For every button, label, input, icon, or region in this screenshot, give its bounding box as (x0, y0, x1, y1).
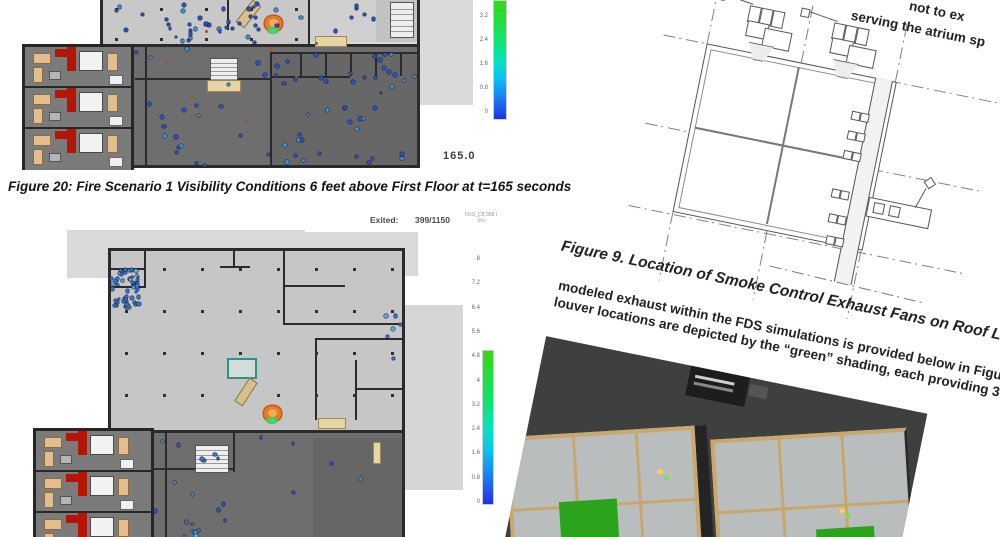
wall-line (145, 44, 147, 168)
occupant-dot (174, 135, 178, 139)
wall-line (400, 52, 402, 76)
wall-line (315, 338, 405, 340)
stair-graphic (390, 2, 414, 38)
wall-line (325, 52, 327, 76)
column-dot (125, 352, 128, 355)
equipment-box (836, 215, 847, 226)
occupant-dot (163, 134, 167, 138)
occupant-dot (148, 102, 152, 106)
occupant-cluster-dot (125, 303, 129, 307)
exhaust-fan-icon (770, 10, 785, 29)
column-dot (201, 310, 204, 313)
wall-line (36, 511, 151, 513)
occupant-cluster-dot (121, 279, 124, 282)
speck (664, 475, 668, 479)
fixture (120, 500, 134, 510)
column-dot (205, 8, 208, 11)
exited-count-label: Exited: (370, 215, 398, 225)
bed-furniture (44, 519, 62, 530)
occupant-dot (298, 133, 301, 136)
column-dot (160, 38, 163, 41)
louver-green (559, 499, 619, 537)
fixture (109, 157, 123, 167)
closet-furniture (118, 519, 129, 537)
column-dot (315, 352, 318, 355)
equipment-box (859, 112, 870, 123)
column-dot (277, 268, 280, 271)
occupant-dot (194, 27, 197, 30)
roof-bay (505, 425, 710, 537)
occupant-dot (286, 60, 289, 63)
column-dot (239, 268, 242, 271)
bathroom (90, 435, 114, 455)
column-dot (277, 310, 280, 313)
wall-line (135, 78, 270, 80)
column-dot (391, 268, 394, 271)
wall-line (220, 266, 250, 268)
occupant-dot (294, 78, 297, 81)
exhaust-fan-icon (855, 27, 870, 46)
roof-mullion (635, 433, 647, 537)
wall-line (300, 52, 302, 76)
ember-dot (335, 58, 338, 61)
occupant-dot (238, 22, 241, 25)
occupant-dot (182, 108, 186, 112)
occupant-dot (302, 159, 305, 162)
desk-furniture (33, 108, 43, 124)
occupant-dot (222, 7, 225, 10)
figure20-caption: Figure 20: Fire Scenario 1 Visibility Co… (8, 179, 571, 194)
fixture (109, 116, 123, 126)
wall-line (165, 432, 167, 537)
wall-line (355, 360, 357, 420)
ember-dot (295, 75, 298, 78)
bench-furniture (318, 418, 346, 429)
leader-line (725, 0, 754, 5)
fixture (60, 455, 72, 464)
occupant-dot (182, 3, 186, 7)
bench-furniture (315, 36, 347, 47)
column-dot (315, 310, 318, 313)
wall-line (270, 52, 420, 54)
leader-tag (716, 0, 727, 1)
occupant-cluster-dot (137, 302, 141, 306)
occupant-dot (260, 436, 263, 439)
occupant-dot (173, 481, 176, 484)
leader-line (915, 188, 927, 208)
equipment-box (872, 202, 885, 215)
occupant-dot (355, 127, 359, 131)
occupant-dot (384, 314, 387, 317)
occupant-dot (256, 61, 259, 64)
occupant-dot (181, 39, 185, 43)
stair-tread (391, 14, 413, 15)
wall-line (402, 248, 405, 537)
stair-tread (391, 26, 413, 27)
bathroom (79, 133, 103, 153)
wall-line (108, 248, 405, 251)
atrium-opening (227, 358, 257, 379)
occupant-dot (249, 15, 252, 18)
ember-dot (245, 120, 248, 123)
occupant-dot (198, 16, 202, 20)
wall-line (355, 388, 405, 390)
colorbar-tick: 3.2 (458, 13, 488, 19)
louver-green (816, 526, 876, 537)
colorbar-tick: 1.6 (458, 61, 488, 67)
equipment-box (851, 152, 862, 163)
column-dot (315, 268, 318, 271)
wall-line (100, 44, 420, 47)
occupant-dot (371, 157, 374, 160)
bed-furniture (33, 94, 51, 105)
occupant-dot (314, 53, 318, 57)
bench-furniture (373, 442, 381, 464)
occupant-cluster-dot (124, 298, 127, 301)
occupant-dot (319, 76, 323, 80)
wall-line (25, 127, 131, 129)
occupant-cluster-dot (114, 279, 118, 283)
occupant-dot (263, 73, 267, 77)
column-dot (205, 38, 208, 41)
bed-furniture (33, 53, 51, 64)
desk-furniture (44, 451, 54, 467)
occupant-dot (386, 335, 389, 338)
ember-dot (165, 60, 168, 63)
wall-line (233, 248, 235, 268)
equipment-box (888, 205, 901, 218)
occupant-dot (224, 519, 227, 522)
occupant-dot (367, 161, 371, 165)
occupant-cluster-dot (135, 284, 139, 288)
leader-tag (800, 8, 811, 19)
equipment-box (834, 237, 845, 248)
wall-line (100, 165, 420, 168)
red-room (78, 472, 87, 496)
occupant-dot (275, 74, 278, 77)
column-dot (353, 394, 356, 397)
wall-line (315, 338, 317, 420)
column-dot (353, 310, 356, 313)
occupant-cluster-dot (116, 284, 119, 287)
column-dot (353, 352, 356, 355)
bathroom (79, 92, 103, 112)
occupant-cluster-dot (130, 296, 134, 300)
occupant-dot (252, 6, 255, 9)
occupant-dot (355, 4, 358, 7)
occupant-cluster-dot (131, 281, 134, 284)
stair-tread (196, 463, 228, 464)
closet-furniture (118, 478, 129, 496)
colorbar-tick: 2.4 (458, 37, 488, 43)
occupant-dot (387, 70, 391, 74)
occupant-dot (297, 138, 300, 141)
occupant-dot (274, 8, 278, 12)
bed-furniture (44, 437, 62, 448)
occupant-dot (390, 85, 394, 89)
column-dot (239, 310, 242, 313)
column-dot (163, 352, 166, 355)
column-dot (163, 394, 166, 397)
occupant-dot (275, 24, 278, 27)
exited-count-value: 399/1150 (415, 215, 450, 225)
speck (657, 470, 663, 474)
occupant-dot (247, 7, 251, 11)
occupant-cluster-dot (137, 295, 140, 298)
occupant-dot (149, 56, 152, 59)
fixture (120, 459, 134, 469)
column-dot (125, 310, 128, 313)
ember-dot (270, 48, 273, 51)
occupant-dot (393, 73, 397, 77)
column-dot (163, 310, 166, 313)
occupant-cluster-dot (110, 277, 113, 280)
bathroom (90, 517, 114, 537)
stair-tread (391, 20, 413, 21)
fire-smoke-contour (269, 419, 275, 423)
red-room (78, 513, 87, 537)
occupant-dot (135, 51, 138, 54)
column-dot (277, 394, 280, 397)
column-dot (239, 352, 242, 355)
wall-line (25, 86, 131, 88)
speck (840, 509, 845, 513)
fixture (109, 75, 123, 85)
wall-line (270, 52, 272, 165)
column-dot (115, 38, 118, 41)
occupant-dot (358, 117, 362, 121)
occupant-dot (334, 29, 337, 32)
occupant-cluster-dot (116, 277, 119, 280)
closet-furniture (107, 53, 118, 71)
occupant-dot (200, 457, 203, 460)
column-dot (277, 352, 280, 355)
red-room (78, 431, 87, 455)
fire-smoke-contour (268, 409, 277, 417)
occupant-dot (378, 58, 382, 62)
occupant-dot (355, 155, 358, 158)
bathroom (79, 51, 103, 71)
stair-tread (391, 31, 413, 32)
column-dot (201, 268, 204, 271)
occupant-dot (383, 53, 386, 56)
occupant-dot (400, 157, 404, 161)
bed-furniture (33, 135, 51, 146)
apartment-block (22, 44, 134, 170)
equipment-box (839, 190, 850, 201)
fixture (49, 112, 61, 121)
colorbar-tick: 0.8 (458, 85, 488, 91)
occupant-dot (185, 520, 189, 524)
bed-furniture (44, 478, 62, 489)
column-dot (391, 352, 394, 355)
column-dot (295, 38, 298, 41)
column-dot (353, 268, 356, 271)
column-dot (201, 394, 204, 397)
occupant-dot (382, 66, 386, 70)
report-figures-collage: 165.0 3.22.41.60.80 Figure 20: Fire Scen… (0, 0, 1000, 537)
occupant-dot (361, 117, 365, 121)
closet-furniture (118, 437, 129, 455)
stair-tread (211, 63, 237, 64)
wall-line (36, 470, 151, 472)
column-dot (391, 310, 394, 313)
occupant-dot (285, 160, 288, 163)
occupant-dot (255, 2, 259, 6)
visibility-colorbar (493, 0, 507, 120)
occupant-dot (185, 47, 189, 51)
bench-furniture (207, 80, 241, 92)
occupant-dot (161, 440, 164, 443)
occupant-cluster-dot (111, 287, 114, 290)
column-dot (315, 394, 318, 397)
wall-line (417, 0, 420, 168)
occupant-dot (299, 16, 302, 19)
occupant-cluster-dot (129, 278, 132, 281)
red-room (67, 47, 76, 71)
fixture (49, 71, 61, 80)
ember-dot (205, 30, 208, 33)
speck (846, 513, 850, 517)
dark-room-floor (313, 438, 405, 537)
fixture (49, 153, 61, 162)
occupant-dot (141, 13, 144, 16)
occupant-dot (283, 143, 287, 147)
occupant-dot (169, 27, 172, 30)
occupant-dot (348, 120, 352, 124)
ember-dot (190, 95, 193, 98)
wall-line (270, 76, 350, 78)
occupant-cluster-dot (134, 269, 138, 273)
column-dot (160, 8, 163, 11)
equipment-box (855, 132, 866, 143)
fixture (60, 496, 72, 505)
occupant-dot (213, 453, 216, 456)
roof-mullion (840, 436, 852, 537)
occupant-cluster-dot (125, 306, 128, 309)
leader-line (809, 11, 838, 22)
column-dot (295, 8, 298, 11)
figure20-floor-plan-image: 165.0 3.22.41.60.80 (15, 0, 507, 170)
closet-furniture (107, 94, 118, 112)
stair-tread (391, 9, 413, 10)
roof-bay (710, 428, 915, 537)
occupant-dot (372, 17, 375, 20)
occupant-dot (300, 138, 304, 142)
occupant-cluster-dot (120, 273, 123, 276)
column-dot (163, 268, 166, 271)
occupant-cluster-dot (136, 279, 139, 282)
column-dot (391, 394, 394, 397)
fire-smoke-contour (270, 29, 276, 33)
desk-furniture (44, 533, 54, 537)
occupant-dot (275, 64, 278, 67)
occupant-dot (294, 154, 297, 157)
occupant-dot (254, 24, 257, 27)
colorbar-tick: 0 (458, 109, 488, 115)
wall-line (308, 0, 310, 44)
occupant-dot (189, 29, 192, 32)
occupant-dot (363, 13, 366, 16)
wall-line (283, 285, 345, 287)
atrium-floor (108, 248, 405, 433)
stair-tread (196, 455, 228, 456)
column-dot (125, 394, 128, 397)
wall-line (233, 432, 235, 472)
simulation-time-label: 165.0 (443, 150, 476, 162)
red-room (67, 88, 76, 112)
desk-furniture (33, 67, 43, 83)
stair-tread (211, 71, 237, 72)
bathroom (90, 476, 114, 496)
occupant-dot (324, 80, 327, 83)
desk-furniture (44, 492, 54, 508)
occupant-dot (253, 41, 256, 44)
occupant-dot (267, 153, 270, 156)
roof-mullion (777, 439, 789, 537)
building-model (503, 381, 927, 537)
column-dot (201, 352, 204, 355)
closet-furniture (107, 135, 118, 153)
red-room (67, 129, 76, 153)
stair-tread (211, 75, 237, 76)
occupant-dot (307, 113, 310, 116)
ember-dot (315, 42, 318, 45)
wall-line (283, 323, 405, 325)
stair-tread (196, 450, 228, 451)
stair-tread (211, 67, 237, 68)
occupant-cluster-dot (114, 299, 117, 302)
occupant-dot (373, 55, 377, 59)
occupant-dot (363, 76, 366, 79)
apartment-block (33, 428, 154, 537)
desk-furniture (33, 149, 43, 165)
stair-tread (196, 468, 228, 469)
roof-mullion (719, 500, 909, 515)
